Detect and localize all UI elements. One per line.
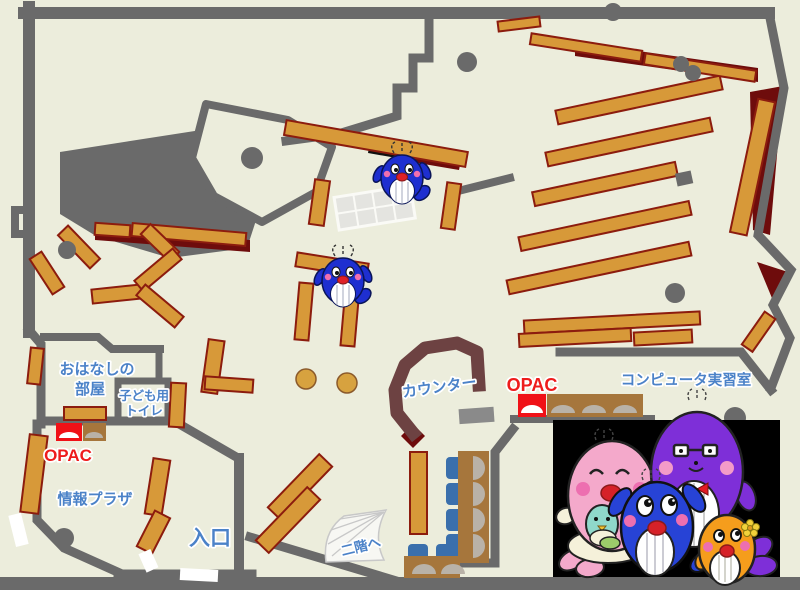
pillar	[604, 3, 622, 21]
label-storytelling-room-line1: おはなしの	[59, 361, 134, 378]
bookshelf	[95, 223, 131, 237]
bookshelf	[64, 407, 106, 420]
bookshelf	[205, 376, 254, 392]
pillar	[457, 52, 477, 72]
label-computer-room: コンピュータ実習室	[621, 371, 752, 389]
label-kids-toilet-line2: トイレ	[125, 404, 163, 418]
round-table	[337, 373, 357, 393]
entrance-door-gap	[180, 568, 219, 582]
opac-desk	[83, 423, 106, 441]
library-floor-map: おはなしの 部屋 子ども用 トイレ OPAC 情報プラザ 入口 カウンター OP…	[0, 0, 800, 590]
bookshelf	[27, 347, 44, 384]
round-table	[296, 369, 316, 389]
label-entrance: 入口	[189, 527, 231, 550]
pillar	[54, 528, 74, 548]
label-info-plaza: 情報プラザ	[57, 490, 132, 508]
pillar	[665, 283, 685, 303]
opac-station-right	[518, 394, 643, 417]
label-opac-left: OPAC	[44, 446, 92, 465]
bookshelf	[169, 383, 186, 428]
wall-bottom-band	[0, 577, 800, 590]
counter-desk	[459, 407, 495, 424]
pillar	[241, 147, 263, 169]
floor-map-svg: おはなしの 部屋 子ども用 トイレ OPAC 情報プラザ 入口 カウンター OP…	[0, 0, 800, 590]
bookshelf	[410, 452, 427, 534]
opac-station-left	[56, 423, 106, 441]
label-kids-toilet-line1: 子ども用	[119, 389, 169, 403]
pillar	[58, 241, 76, 259]
pillar	[685, 65, 701, 81]
label-storytelling-room-line2: 部屋	[75, 380, 105, 398]
bookshelf	[634, 329, 693, 345]
label-opac-right: OPAC	[507, 375, 558, 395]
